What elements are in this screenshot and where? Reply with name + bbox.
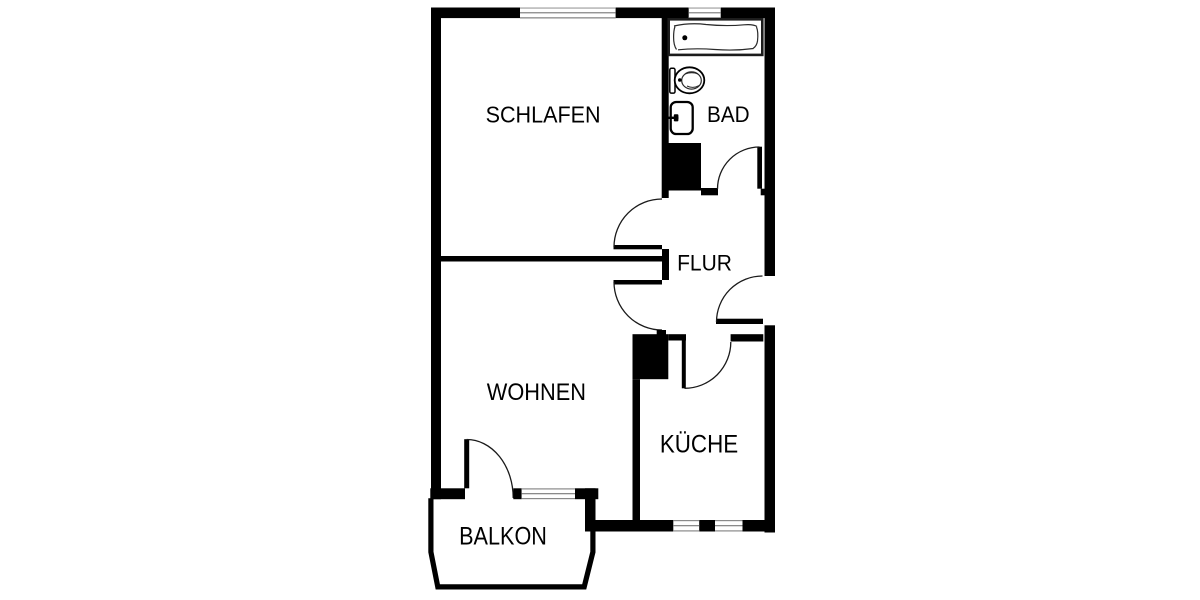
- svg-text:BAD: BAD: [707, 102, 750, 127]
- svg-text:KÜCHE: KÜCHE: [660, 430, 738, 458]
- svg-text:SCHLAFEN: SCHLAFEN: [486, 102, 601, 128]
- svg-text:BALKON: BALKON: [459, 522, 547, 550]
- svg-text:FLUR: FLUR: [677, 250, 732, 276]
- svg-text:WOHNEN: WOHNEN: [487, 378, 586, 405]
